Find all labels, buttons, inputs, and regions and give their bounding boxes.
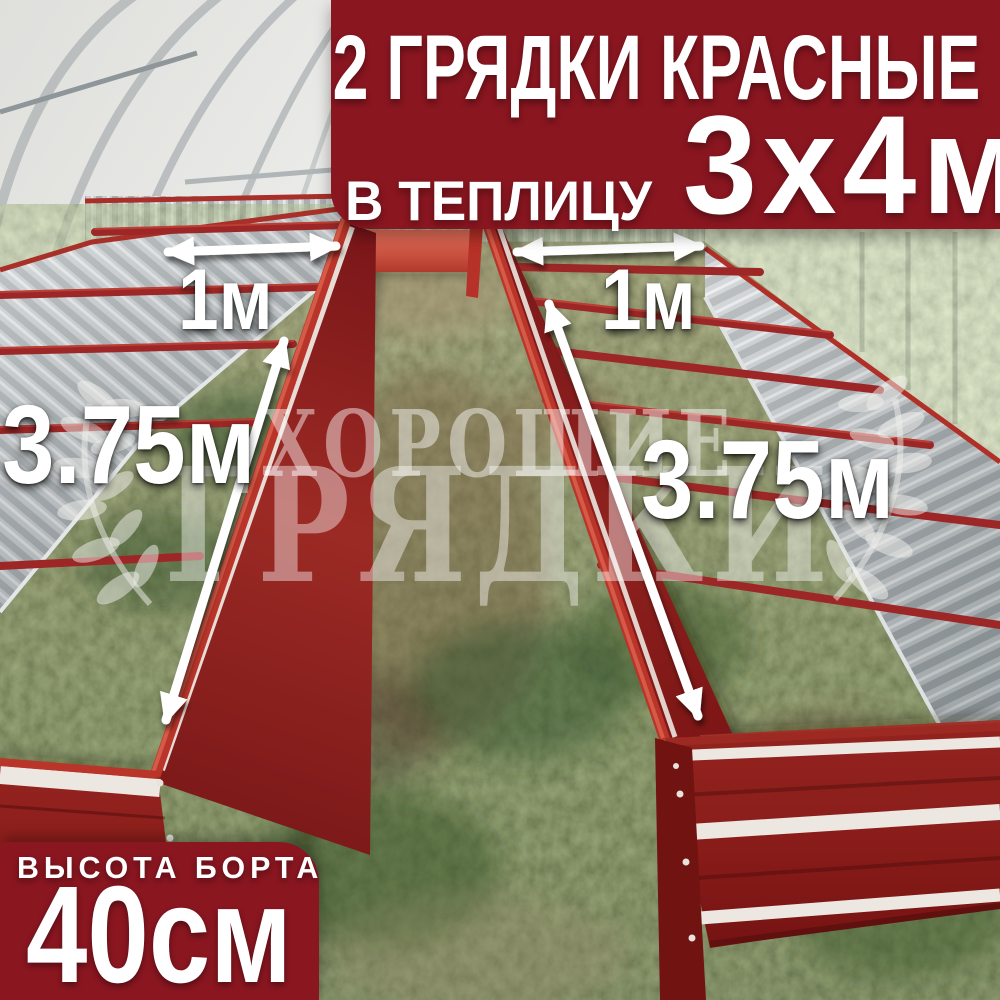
length-label-left-text: 3.75м (2, 390, 255, 501)
length-label-right: 3.75м (641, 425, 939, 536)
width-label-right: 1м (601, 257, 712, 343)
length-label-right-text: 3.75м (641, 425, 894, 536)
width-label-left: 1м (178, 257, 289, 343)
banner-greenhouse-size: 3х4м (683, 95, 1000, 235)
width-label-left-text: 1м (178, 257, 273, 343)
length-label-left: 3.75м (2, 390, 300, 501)
width-label-right-text: 1м (601, 257, 696, 343)
banner-greenhouse-label: В ТЕПЛИЦУ (345, 173, 652, 229)
product-image: ХОРОШИЕ ГРЯДКИ 1м 1м 3.75м 3.75м 2 ГРЯДК… (0, 0, 1000, 1000)
badge-value: 40см (26, 866, 292, 1000)
title-banner: 2 ГРЯДКИ КРАСНЫЕ В ТЕПЛИЦУ 3х4м (331, 0, 1000, 229)
height-badge: ВЫСОТА БОРТА 40см (0, 842, 319, 1000)
